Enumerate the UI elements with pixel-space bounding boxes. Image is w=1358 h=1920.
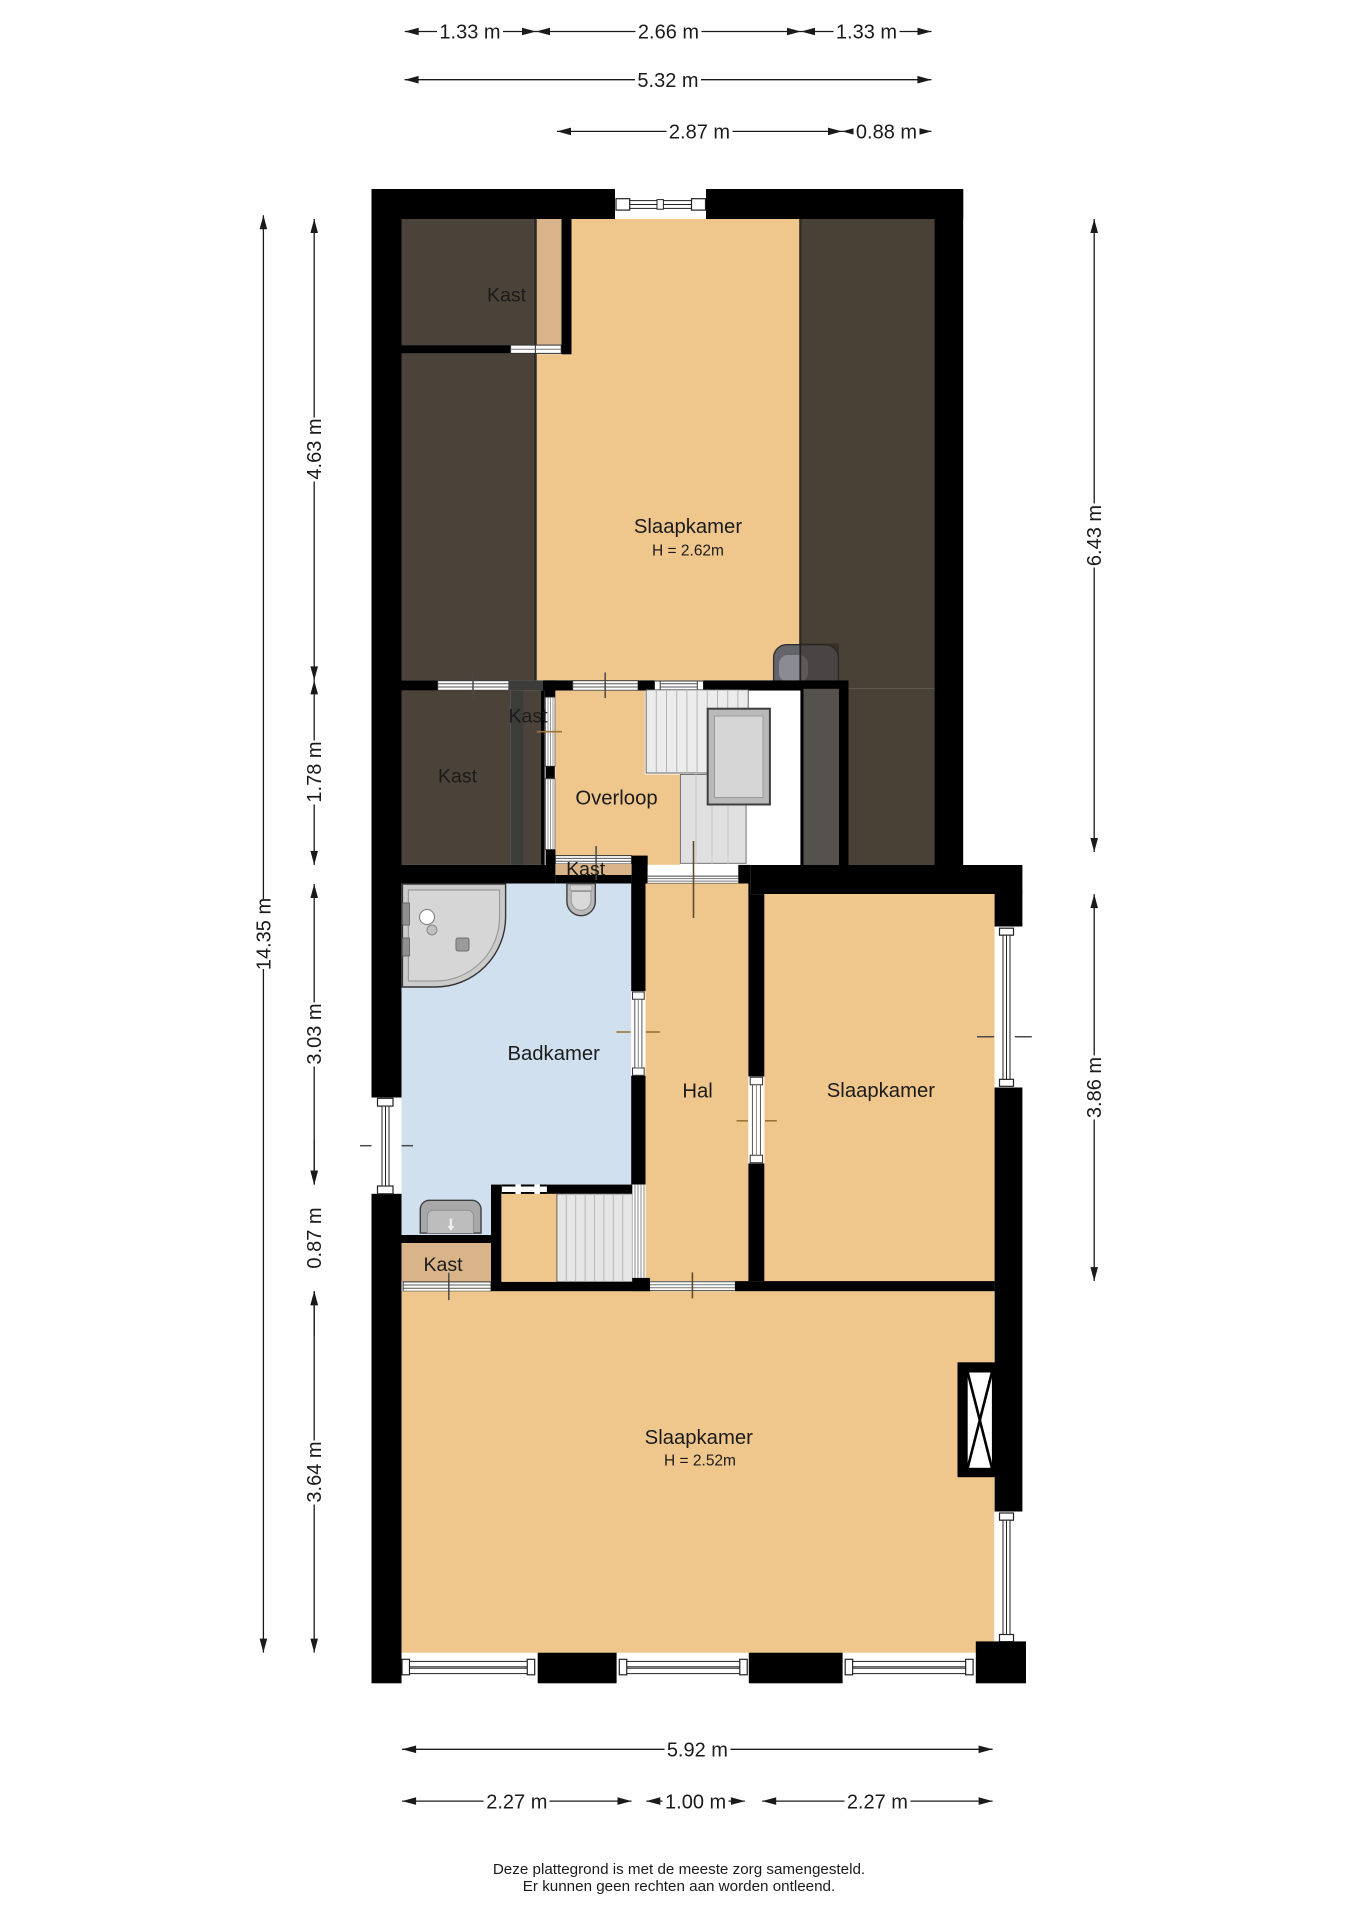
- svg-text:Deze plattegrond is met de mee: Deze plattegrond is met de meeste zorg s…: [493, 1861, 865, 1878]
- svg-text:4.63 m: 4.63 m: [304, 418, 326, 479]
- svg-text:Kast: Kast: [423, 1254, 463, 1276]
- svg-text:3.86 m: 3.86 m: [1084, 1057, 1106, 1118]
- svg-text:5.32 m: 5.32 m: [637, 70, 698, 92]
- svg-text:H = 2.62m: H = 2.62m: [652, 543, 724, 560]
- svg-text:2.66 m: 2.66 m: [638, 22, 699, 44]
- svg-text:Slaapkamer: Slaapkamer: [634, 516, 742, 538]
- svg-text:Er kunnen geen rechten aan wor: Er kunnen geen rechten aan worden ontlee…: [523, 1878, 835, 1895]
- svg-text:Kast: Kast: [438, 766, 478, 788]
- svg-text:H = 2.52m: H = 2.52m: [664, 1453, 736, 1470]
- svg-text:Kast: Kast: [566, 859, 606, 881]
- svg-text:3.64 m: 3.64 m: [304, 1441, 326, 1502]
- svg-text:Kast: Kast: [508, 705, 548, 727]
- svg-text:1.00 m: 1.00 m: [665, 1791, 726, 1813]
- svg-text:Kast: Kast: [487, 285, 527, 307]
- svg-text:3.03 m: 3.03 m: [304, 1003, 326, 1064]
- svg-text:2.87 m: 2.87 m: [669, 122, 730, 144]
- svg-text:Hal: Hal: [682, 1081, 712, 1103]
- svg-text:1.33 m: 1.33 m: [439, 22, 500, 44]
- svg-text:2.27 m: 2.27 m: [486, 1791, 547, 1813]
- svg-text:5.92 m: 5.92 m: [667, 1740, 728, 1762]
- svg-text:0.88 m: 0.88 m: [856, 122, 917, 144]
- svg-text:Slaapkamer: Slaapkamer: [827, 1080, 935, 1102]
- svg-text:2.27 m: 2.27 m: [847, 1791, 908, 1813]
- svg-text:14.35 m: 14.35 m: [253, 898, 275, 970]
- svg-text:0.87 m: 0.87 m: [304, 1207, 326, 1268]
- svg-text:Slaapkamer: Slaapkamer: [645, 1427, 753, 1449]
- svg-text:1.33 m: 1.33 m: [836, 22, 897, 44]
- svg-text:Overloop: Overloop: [575, 787, 657, 809]
- svg-text:Badkamer: Badkamer: [507, 1043, 600, 1065]
- svg-text:1.78 m: 1.78 m: [304, 741, 326, 802]
- svg-text:6.43 m: 6.43 m: [1084, 505, 1106, 566]
